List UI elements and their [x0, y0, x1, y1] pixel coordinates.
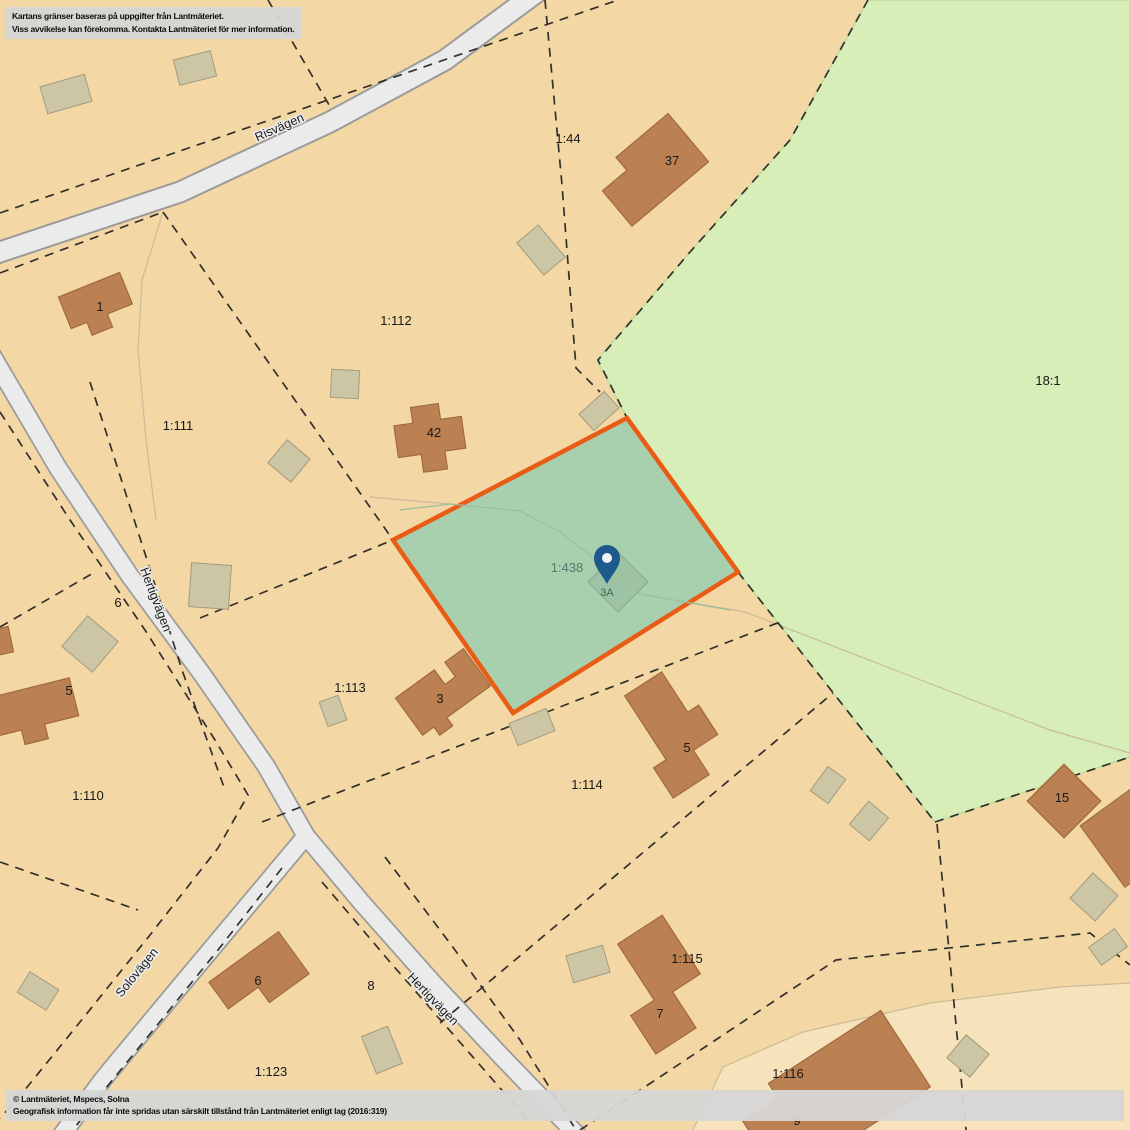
house-number-42: 42: [427, 425, 441, 440]
marker-address-label: 3A: [600, 587, 614, 599]
house-number-3: 3: [436, 691, 443, 706]
house-number-1: 1: [96, 299, 103, 314]
house-number-6-left: 6: [114, 595, 121, 610]
house-number-6-bottom: 6: [254, 973, 261, 988]
house-number-8: 8: [367, 978, 374, 993]
parcel-label-1-112: 1:112: [380, 313, 412, 328]
shed-footprint: [189, 563, 232, 610]
copyright-line: © Lantmäteriet, Mspecs, Solna: [13, 1093, 1117, 1106]
copyright-line: Geografisk information får inte spridas …: [13, 1105, 1117, 1118]
parcel-label-1-110: 1:110: [72, 788, 104, 803]
house-number-15: 15: [1055, 790, 1069, 805]
map-disclaimer-top: Kartans gränser baseras på uppgifter frå…: [5, 7, 301, 39]
house-number-37: 37: [665, 153, 679, 168]
map-copyright-bottom: © Lantmäteriet, Mspecs, Solna Geografisk…: [6, 1090, 1124, 1122]
disclaimer-line: Kartans gränser baseras på uppgifter frå…: [12, 10, 294, 23]
house-number-5: 5: [683, 740, 690, 755]
shed-footprint: [330, 369, 359, 398]
parcel-label-1-113: 1:113: [334, 680, 366, 695]
parcel-label-1-114: 1:114: [571, 777, 603, 792]
disclaimer-line: Viss avvikelse kan förekomma. Kontakta L…: [12, 23, 294, 36]
house-number-5-left: 5: [65, 683, 72, 698]
cadastral-map: 1:44 1:112 1:111 18:1 1:110 1:113 1:114 …: [0, 0, 1130, 1130]
parcel-label-1-111: 1:111: [163, 418, 194, 433]
parcel-label-1-115: 1:115: [671, 951, 703, 966]
parcel-label-18-1: 18:1: [1035, 373, 1060, 388]
parcel-label-1-123: 1:123: [255, 1064, 288, 1079]
map-pin-hole: [602, 553, 612, 563]
house-number-7: 7: [656, 1006, 663, 1021]
map-canvas: 1:44 1:112 1:111 18:1 1:110 1:113 1:114 …: [0, 0, 1130, 1130]
parcel-label-1-116: 1:116: [772, 1066, 804, 1081]
parcel-label-1-44: 1:44: [555, 131, 580, 146]
selected-parcel-id-label: 1:438: [551, 560, 584, 575]
